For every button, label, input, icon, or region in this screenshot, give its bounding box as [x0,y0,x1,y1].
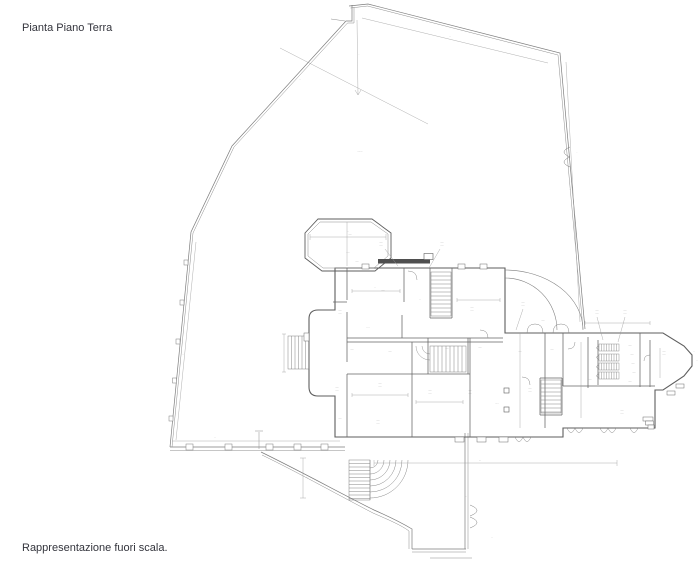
svg-text:·····: ····· [623,313,627,316]
svg-text:··: ·· [569,188,571,191]
svg-text:·····: ····· [346,251,350,254]
svg-text:·····: ····· [378,386,382,389]
svg-text:··.··: ··.·· [630,353,634,356]
svg-text:·····: ····· [595,313,599,316]
svg-text:··.··: ··.·· [518,350,522,353]
svg-text:··: ·· [449,35,451,38]
svg-text:·····: ····· [338,313,342,316]
svg-text:··.··: ··.·· [628,344,632,347]
svg-text:··: ·· [491,536,493,539]
svg-text:·····: ····· [468,393,472,396]
svg-text:··.··: ··.·· [541,319,545,322]
svg-text:·····: ····· [335,390,339,393]
svg-text:·····: ····· [521,305,525,308]
svg-text:····: ···· [366,326,369,329]
svg-text:·····: ····· [528,391,532,394]
drawing-sheet: Pianta Piano Terra ··.···········.····.·… [0,0,700,567]
svg-text:··.··: ··.·· [628,380,632,383]
svg-text:·····: ····· [379,245,383,248]
svg-text:··: ·· [182,353,184,356]
svg-text:·····: ····· [376,423,380,426]
svg-text:··.··: ··.·· [632,371,636,374]
svg-text:··.··: ··.·· [381,289,385,292]
svg-text:··.··: ··.·· [550,348,554,351]
svg-text:·····: ····· [662,354,666,357]
svg-text:··: ·· [465,495,467,498]
svg-text:·: · [577,151,578,154]
svg-text:··.··: ··.·· [445,347,449,350]
svg-text:··.··: ··.·· [631,362,635,365]
svg-text:··.···: ··.··· [358,150,363,153]
svg-text:··.··: ··.·· [348,233,352,236]
floor-plan-svg: ··.···········.····.·········.·········.… [0,0,700,567]
svg-text:··.··: ··.·· [478,346,482,349]
scale-note: Rappresentazione fuori scala. [22,542,168,554]
svg-text:··.··: ··.·· [355,260,359,263]
svg-text:··.··: ··.·· [350,348,354,351]
svg-text:··.··: ··.·· [588,378,592,381]
svg-text:·: · [359,53,360,56]
svg-text:·····: ····· [440,245,444,248]
svg-text:·.··: ·.·· [495,402,498,405]
svg-text:··: ·· [374,286,376,289]
svg-text:··: ·· [693,350,695,353]
svg-text:··: ·· [299,78,301,81]
svg-text:·····: ····· [620,413,624,416]
svg-text:·····: ····· [470,310,474,313]
svg-text:··.··: ··.·· [388,350,392,353]
svg-text:··: ·· [696,359,698,362]
svg-text:···: ··· [479,459,481,462]
svg-text:·····: ····· [428,393,432,396]
svg-text:··: ·· [214,436,216,439]
svg-text:··.··: ··.·· [338,417,342,420]
svg-text:··: ·· [419,298,421,301]
